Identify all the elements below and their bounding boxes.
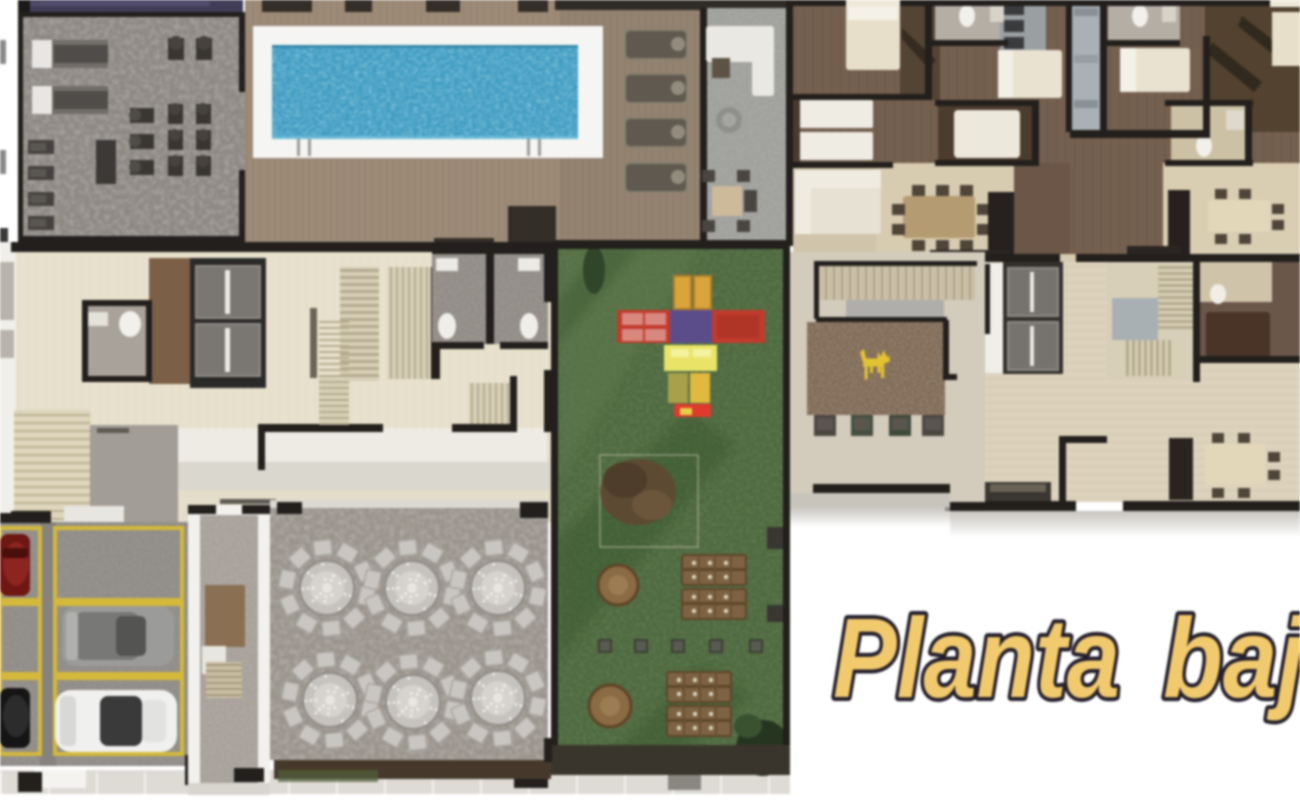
svg-text:Planta: Planta <box>833 595 1120 721</box>
svg-text:baja: baja <box>1163 595 1300 721</box>
